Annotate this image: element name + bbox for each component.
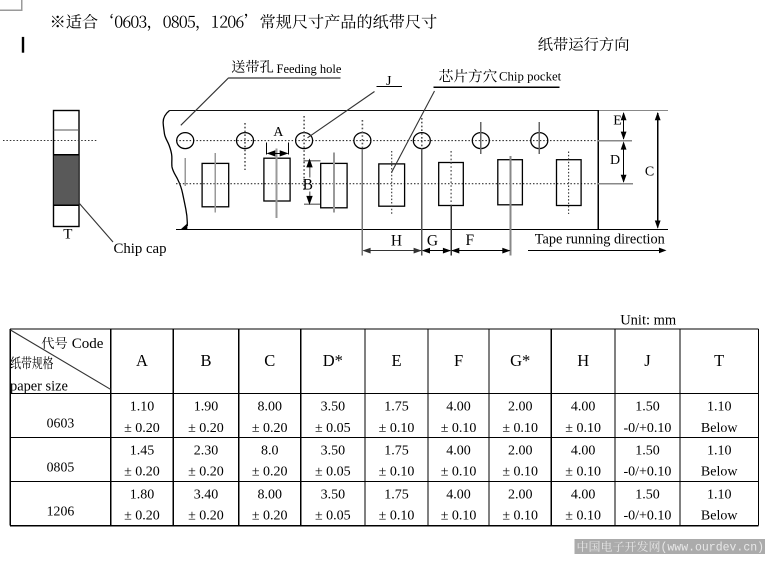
- svg-text:± 0.10: ± 0.10: [502, 509, 538, 524]
- svg-text:± 0.20: ± 0.20: [124, 465, 160, 480]
- svg-text:± 0.20: ± 0.20: [188, 509, 224, 524]
- svg-text:D*: D*: [323, 351, 343, 370]
- svg-text:Below: Below: [701, 421, 738, 436]
- svg-text:1.10: 1.10: [707, 488, 732, 503]
- svg-text:C: C: [264, 351, 275, 370]
- svg-text:± 0.10: ± 0.10: [502, 421, 538, 436]
- svg-text:± 0.20: ± 0.20: [252, 465, 288, 480]
- svg-text:T: T: [714, 351, 724, 370]
- svg-text:1.10: 1.10: [707, 400, 732, 415]
- svg-text:± 0.10: ± 0.10: [441, 509, 477, 524]
- svg-text:D: D: [610, 153, 620, 168]
- svg-text:± 0.10: ± 0.10: [379, 509, 415, 524]
- svg-text:B: B: [303, 177, 313, 194]
- svg-text:T: T: [63, 227, 72, 243]
- svg-text:± 0.05: ± 0.05: [315, 465, 351, 480]
- svg-text:± 0.10: ± 0.10: [565, 509, 601, 524]
- svg-text:1.75: 1.75: [384, 488, 409, 503]
- svg-text:0805: 0805: [47, 459, 75, 474]
- svg-text:4.00: 4.00: [446, 400, 471, 415]
- svg-text:(www.ourdev.cn): (www.ourdev.cn): [661, 542, 765, 555]
- svg-text:4.00: 4.00: [446, 488, 471, 503]
- svg-text:F: F: [454, 351, 463, 370]
- svg-text:Unit: mm: Unit: mm: [620, 312, 677, 328]
- svg-text:± 0.05: ± 0.05: [315, 509, 351, 524]
- svg-text:± 0.10: ± 0.10: [379, 465, 415, 480]
- svg-text:2.00: 2.00: [508, 444, 533, 459]
- svg-text:0603: 0603: [47, 415, 75, 430]
- svg-text:Feeding hole: Feeding hole: [277, 62, 342, 76]
- svg-text:E: E: [391, 351, 401, 370]
- svg-text:C: C: [645, 164, 654, 179]
- svg-text:H: H: [391, 232, 402, 249]
- svg-text:Below: Below: [701, 465, 738, 480]
- svg-text:± 0.20: ± 0.20: [252, 509, 288, 524]
- svg-text:2.30: 2.30: [194, 444, 219, 459]
- svg-text:4.00: 4.00: [571, 444, 596, 459]
- svg-text:3.50: 3.50: [321, 444, 346, 459]
- svg-text:3.50: 3.50: [321, 400, 346, 415]
- svg-text:G: G: [427, 233, 438, 250]
- svg-text:Chip pocket: Chip pocket: [499, 69, 562, 83]
- svg-text:-0/+0.10: -0/+0.10: [623, 465, 671, 480]
- svg-text:8.00: 8.00: [257, 400, 282, 415]
- svg-text:1.80: 1.80: [130, 488, 155, 503]
- svg-text:1206: 1206: [47, 503, 75, 518]
- svg-text:A: A: [273, 124, 283, 139]
- svg-text:± 0.10: ± 0.10: [441, 465, 477, 480]
- svg-text:2.00: 2.00: [508, 488, 533, 503]
- svg-text:G*: G*: [510, 351, 530, 370]
- svg-text:8.0: 8.0: [261, 444, 279, 459]
- svg-text:1.10: 1.10: [707, 444, 732, 459]
- svg-text:Below: Below: [701, 509, 738, 524]
- svg-text:B: B: [200, 351, 211, 370]
- svg-text:± 0.10: ± 0.10: [565, 465, 601, 480]
- svg-text:± 0.05: ± 0.05: [315, 421, 351, 436]
- svg-text:-0/+0.10: -0/+0.10: [623, 421, 671, 436]
- svg-text:1.50: 1.50: [635, 400, 660, 415]
- svg-text:1.45: 1.45: [130, 444, 155, 459]
- svg-text:-0/+0.10: -0/+0.10: [623, 509, 671, 524]
- svg-text:± 0.10: ± 0.10: [441, 421, 477, 436]
- svg-text:4.00: 4.00: [571, 400, 596, 415]
- svg-text:4.00: 4.00: [446, 444, 471, 459]
- svg-text:± 0.10: ± 0.10: [379, 421, 415, 436]
- svg-text:F: F: [465, 232, 474, 249]
- svg-text:E: E: [613, 114, 622, 129]
- svg-text:J: J: [644, 351, 651, 370]
- svg-text:A: A: [136, 351, 148, 370]
- svg-text:± 0.20: ± 0.20: [124, 509, 160, 524]
- svg-text:Chip cap: Chip cap: [114, 241, 167, 257]
- svg-text:± 0.20: ± 0.20: [188, 421, 224, 436]
- svg-text:± 0.10: ± 0.10: [502, 465, 538, 480]
- svg-text:1.75: 1.75: [384, 400, 409, 415]
- svg-text:1.75: 1.75: [384, 444, 409, 459]
- svg-text:4.00: 4.00: [571, 488, 596, 503]
- svg-text:1.50: 1.50: [635, 444, 660, 459]
- svg-text:1.10: 1.10: [130, 400, 155, 415]
- svg-text:± 0.10: ± 0.10: [565, 421, 601, 436]
- svg-text:H: H: [577, 351, 589, 370]
- svg-text:Tape running direction: Tape running direction: [535, 231, 665, 247]
- svg-text:3.50: 3.50: [321, 488, 346, 503]
- svg-text:3.40: 3.40: [194, 488, 219, 503]
- svg-text:± 0.20: ± 0.20: [252, 421, 288, 436]
- svg-text:± 0.20: ± 0.20: [124, 421, 160, 436]
- svg-text:1.50: 1.50: [635, 488, 660, 503]
- svg-text:1.90: 1.90: [194, 400, 219, 415]
- svg-text:2.00: 2.00: [508, 400, 533, 415]
- svg-text:± 0.20: ± 0.20: [188, 465, 224, 480]
- svg-text:Code: Code: [72, 336, 104, 352]
- svg-text:8.00: 8.00: [257, 488, 282, 503]
- svg-text:paper size: paper size: [10, 378, 68, 394]
